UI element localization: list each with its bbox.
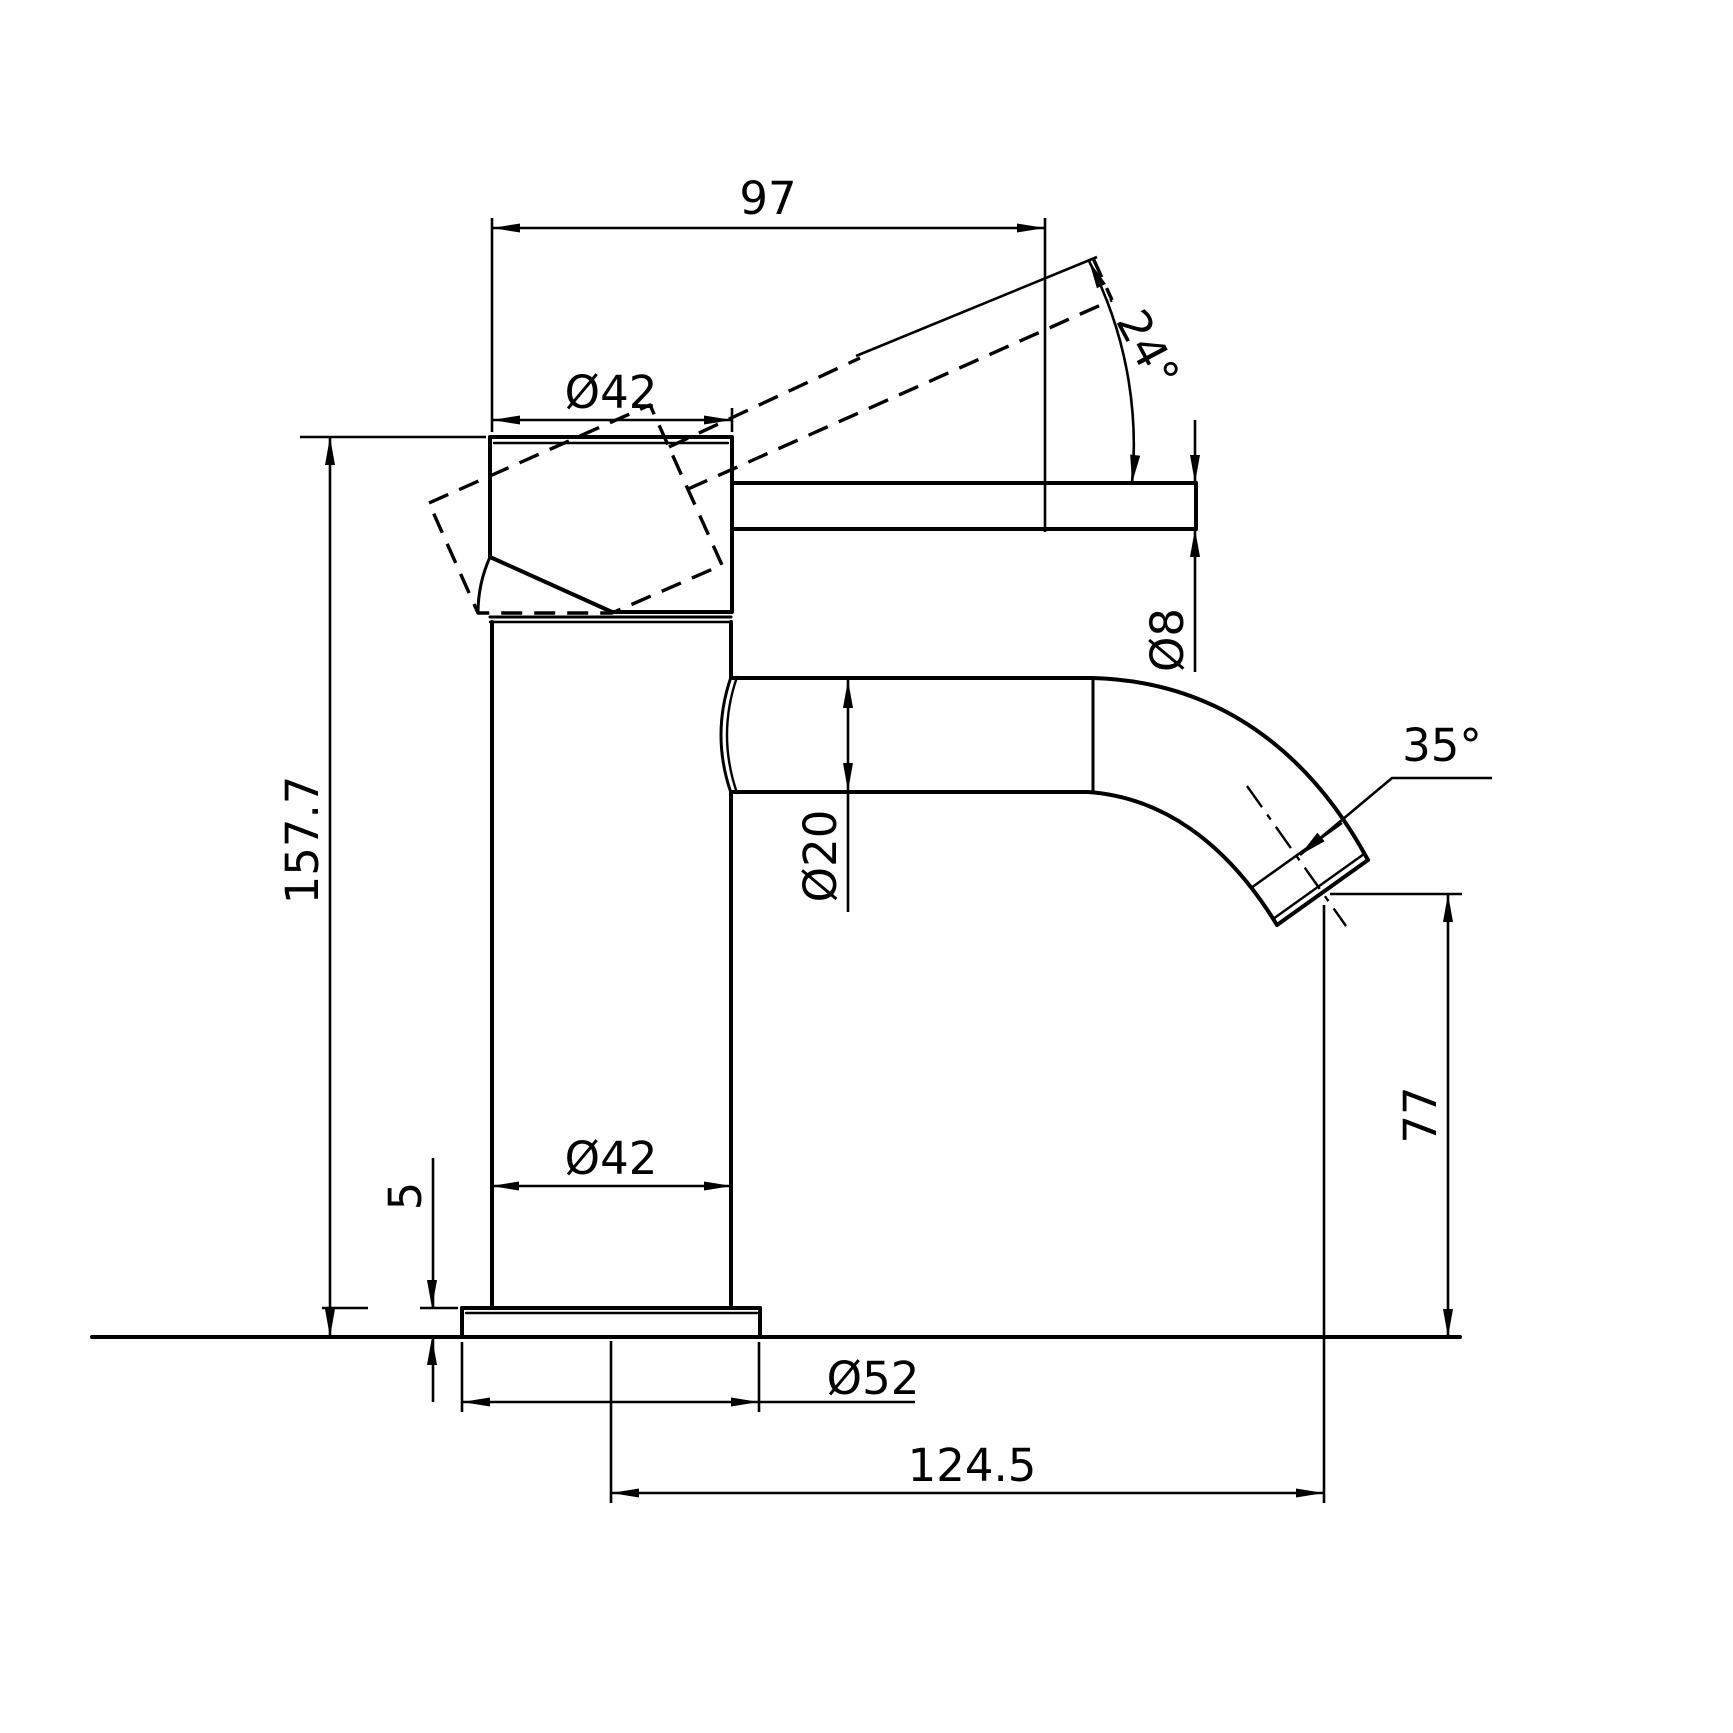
drawing-canvas: 97 Ø42 24° Ø8 157.7 Ø20 [0,0,1733,1733]
dim-spout-reach: 124.5 [611,905,1324,1503]
dim-handle-tilt-angle: 24° [1089,261,1190,483]
dim-spout-tube-diameter-label: Ø20 [794,810,847,903]
dim-top-width-label: 97 [739,172,796,225]
tilted-lever-top [669,358,860,447]
spout-root-fillet-inner [727,677,737,793]
dim-outlet-angle: 35° [1300,719,1492,855]
tilt-reference-line [856,257,1097,356]
dim-outlet-angle-label: 35° [1402,719,1482,772]
dim-spout-reach-label: 124.5 [908,1439,1037,1492]
dim-body-diameter: Ø42 [491,1132,732,1191]
dim-spout-tube-diameter: Ø20 [794,680,853,912]
dim-total-height-label: 157.7 [276,776,329,905]
dim-top-width: 97 [492,172,1045,532]
dim-handle-tilt-angle-label: 24° [1106,301,1190,396]
dim-body-diameter-label: Ø42 [565,1132,658,1185]
handle-cap-outline [490,437,732,612]
spout-end-face [1277,860,1368,925]
dim-base-plate-thickness-label: 5 [379,1182,432,1211]
dim-base-plate-diameter: Ø52 [462,1342,919,1412]
tilted-lever-bottom [688,300,1112,489]
handle-pivot-arc [478,557,490,613]
dim-outlet-height-label: 77 [1394,1086,1447,1143]
dim-base-plate-diameter-label: Ø52 [827,1352,920,1405]
dim-outlet-height: 77 [1330,894,1462,1337]
dim-handle-diameter-label: Ø42 [565,366,658,419]
dim-base-plate-thickness: 5 [322,1158,458,1402]
faucet-technical-drawing: 97 Ø42 24° Ø8 157.7 Ø20 [0,0,1733,1733]
dim-lever-diameter: Ø8 [1141,420,1200,672]
dim-lever-diameter-label: Ø8 [1141,608,1194,672]
